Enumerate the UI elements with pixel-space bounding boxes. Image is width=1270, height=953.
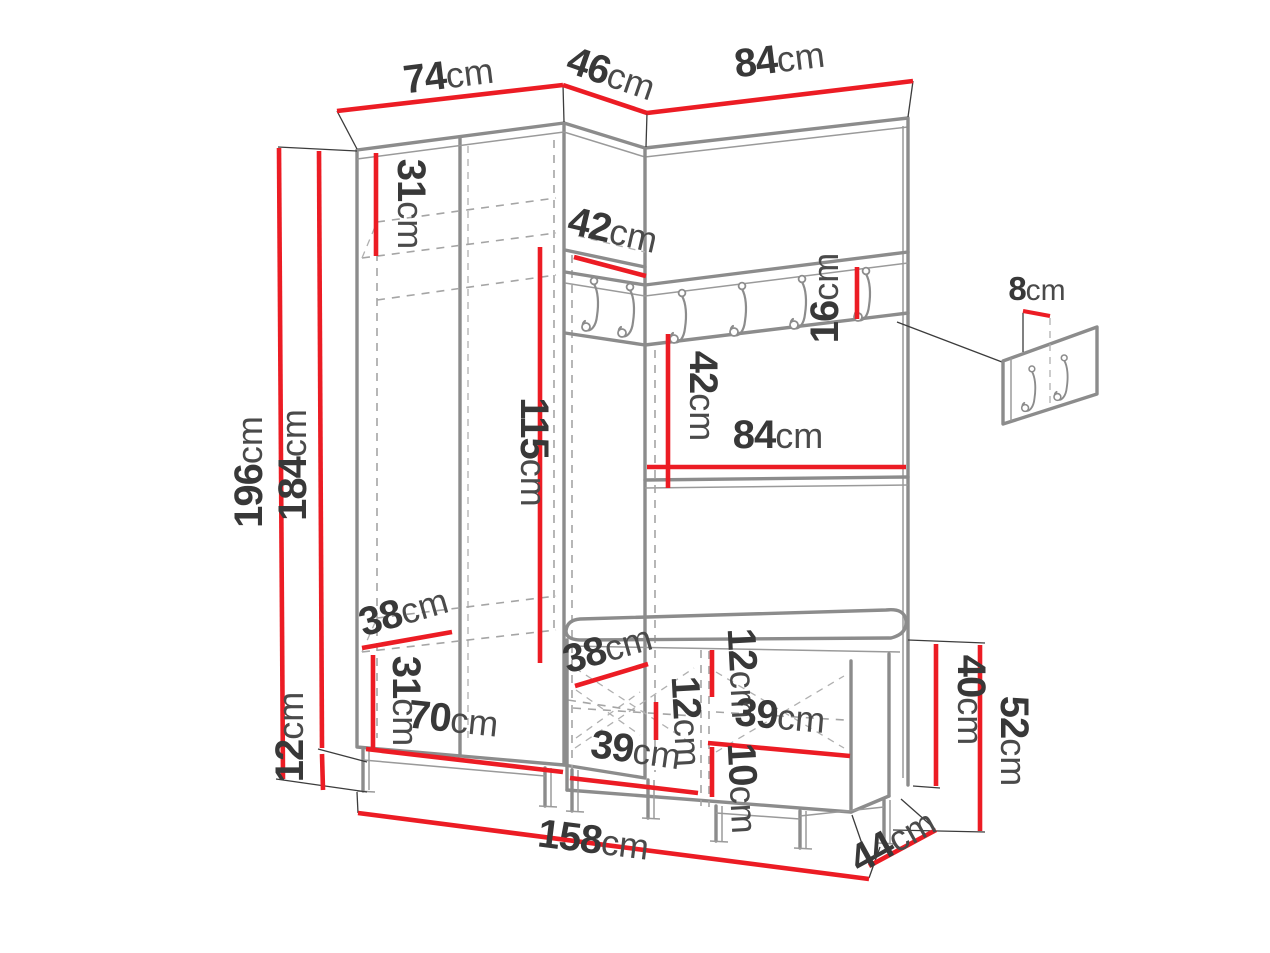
- coat-hook-icon: [1022, 366, 1036, 411]
- coat-hook-icon: [1054, 355, 1068, 400]
- dim-label-84cm-mid: 84cm: [733, 413, 824, 457]
- dim-label-44cm: 44cm: [842, 799, 942, 881]
- dim-label-16cm: 16cm: [803, 253, 847, 344]
- dim-label-40cm: 40cm: [949, 655, 993, 746]
- furniture-line-drawing: 74cm 46cm 84cm 196cm 184cm 31cm 42cm 115…: [0, 0, 1270, 953]
- dim-line-8cm: [1023, 311, 1050, 316]
- dim-label-8cm: 8cm: [1008, 270, 1065, 307]
- corner-interior-dashed: [568, 255, 655, 772]
- dim-label-10cm: 10cm: [719, 742, 768, 835]
- dim-line-12cm-plinth: [322, 754, 323, 790]
- dim-label-184cm: 184cm: [271, 409, 315, 521]
- hook-panel-detail: [897, 313, 1097, 424]
- dim-label-52cm: 52cm: [992, 696, 1036, 787]
- dim-line-84cm-top: [647, 81, 913, 113]
- dim-label-39cm-upper: 39cm: [733, 690, 827, 742]
- dim-label-115cm: 115cm: [512, 397, 556, 507]
- dimension-diagram: 74cm 46cm 84cm 196cm 184cm 31cm 42cm 115…: [0, 0, 1270, 953]
- dim-label-70cm: 70cm: [406, 692, 501, 745]
- dim-label-12cm-plinth: 12cm: [268, 692, 312, 783]
- dim-label-84cm-top: 84cm: [732, 32, 827, 87]
- dim-label-38cm-bench: 38cm: [558, 615, 657, 682]
- dim-label-158cm: 158cm: [535, 811, 651, 868]
- dim-label-31cm-top: 31cm: [389, 159, 433, 250]
- dim-label-42cm-mid: 42cm: [681, 351, 725, 442]
- dim-line-184cm: [319, 151, 322, 748]
- coat-hook-icon: [730, 283, 746, 336]
- coat-hook-icon: [670, 290, 686, 343]
- dim-label-46cm: 46cm: [561, 38, 661, 109]
- dim-label-196cm: 196cm: [227, 416, 271, 528]
